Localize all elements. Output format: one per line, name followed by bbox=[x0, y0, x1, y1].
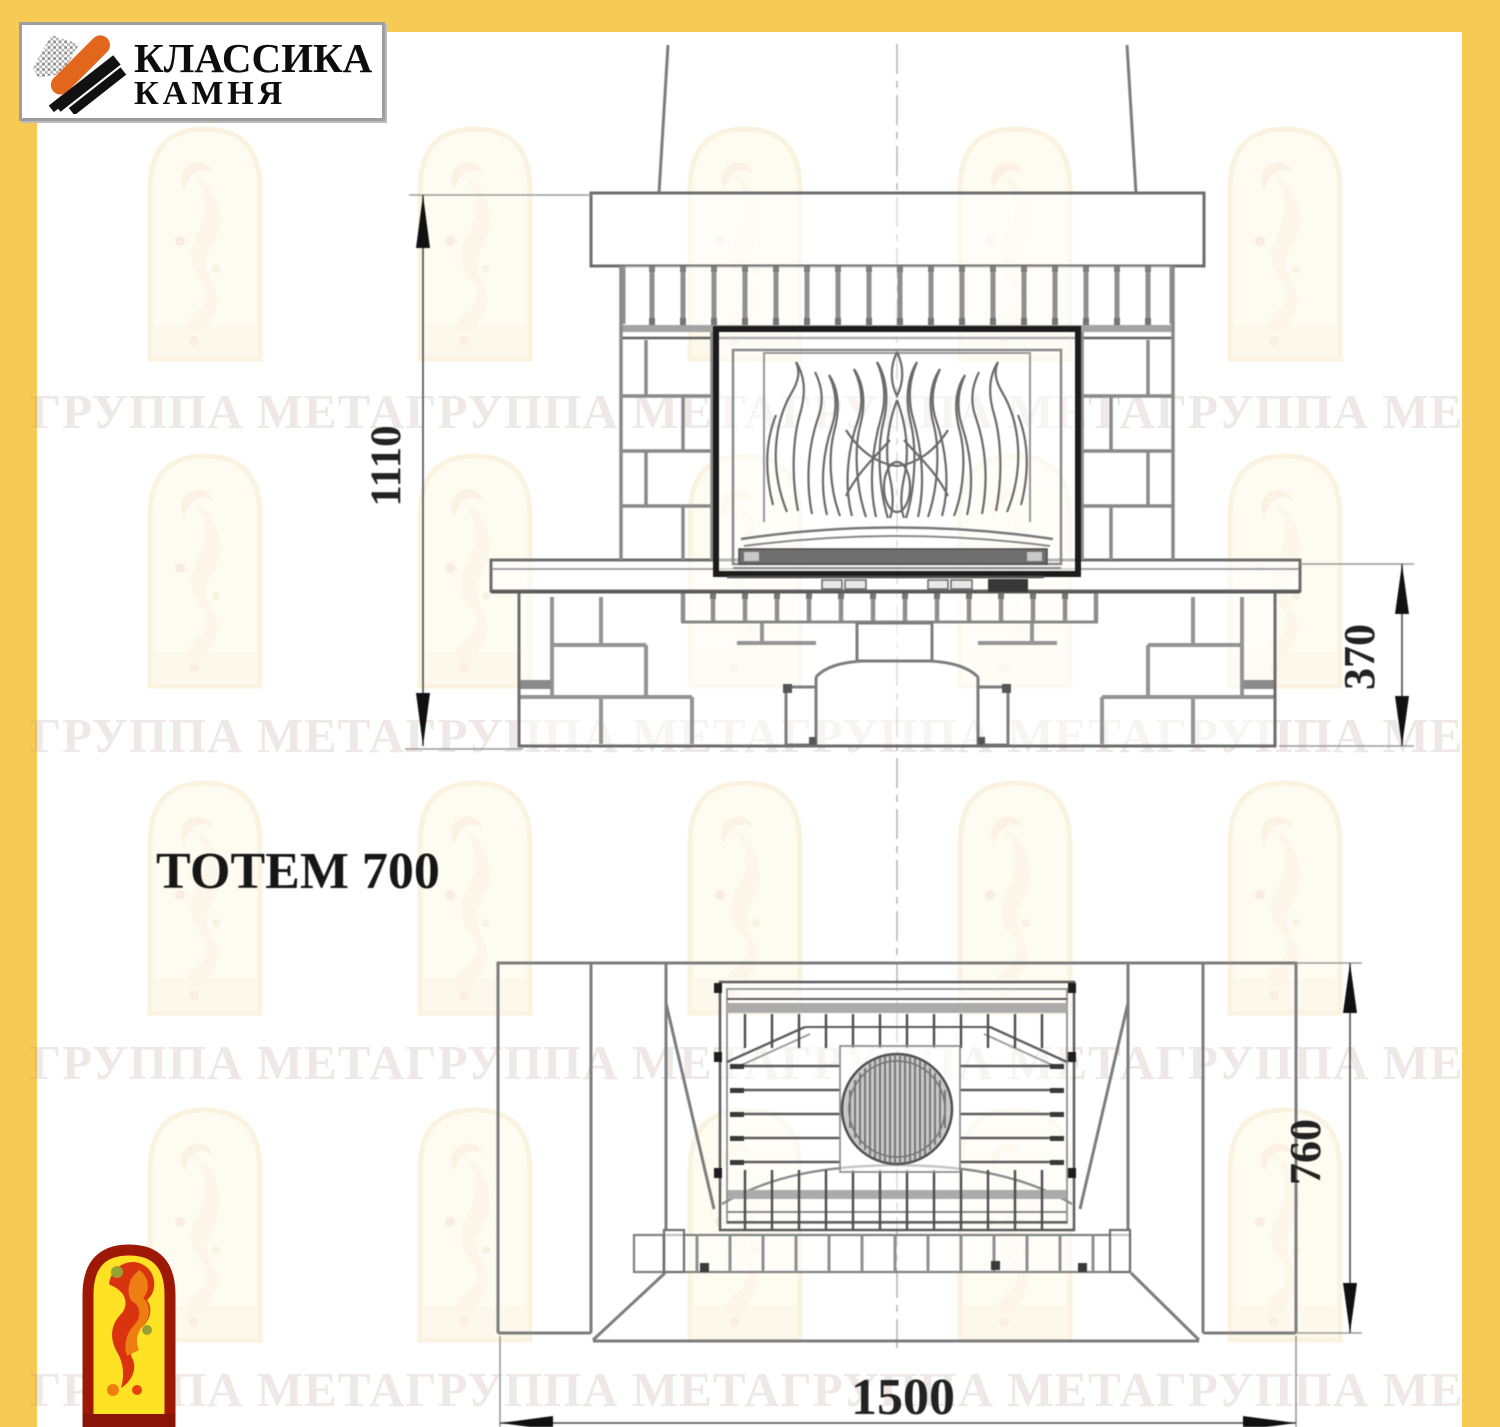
svg-text:ТОТЕМ 700: ТОТЕМ 700 bbox=[156, 843, 440, 900]
svg-text:1110: 1110 bbox=[363, 425, 410, 506]
svg-text:760: 760 bbox=[1281, 1119, 1330, 1185]
svg-text:370: 370 bbox=[1335, 624, 1384, 690]
svg-text:1500: 1500 bbox=[851, 1369, 955, 1426]
